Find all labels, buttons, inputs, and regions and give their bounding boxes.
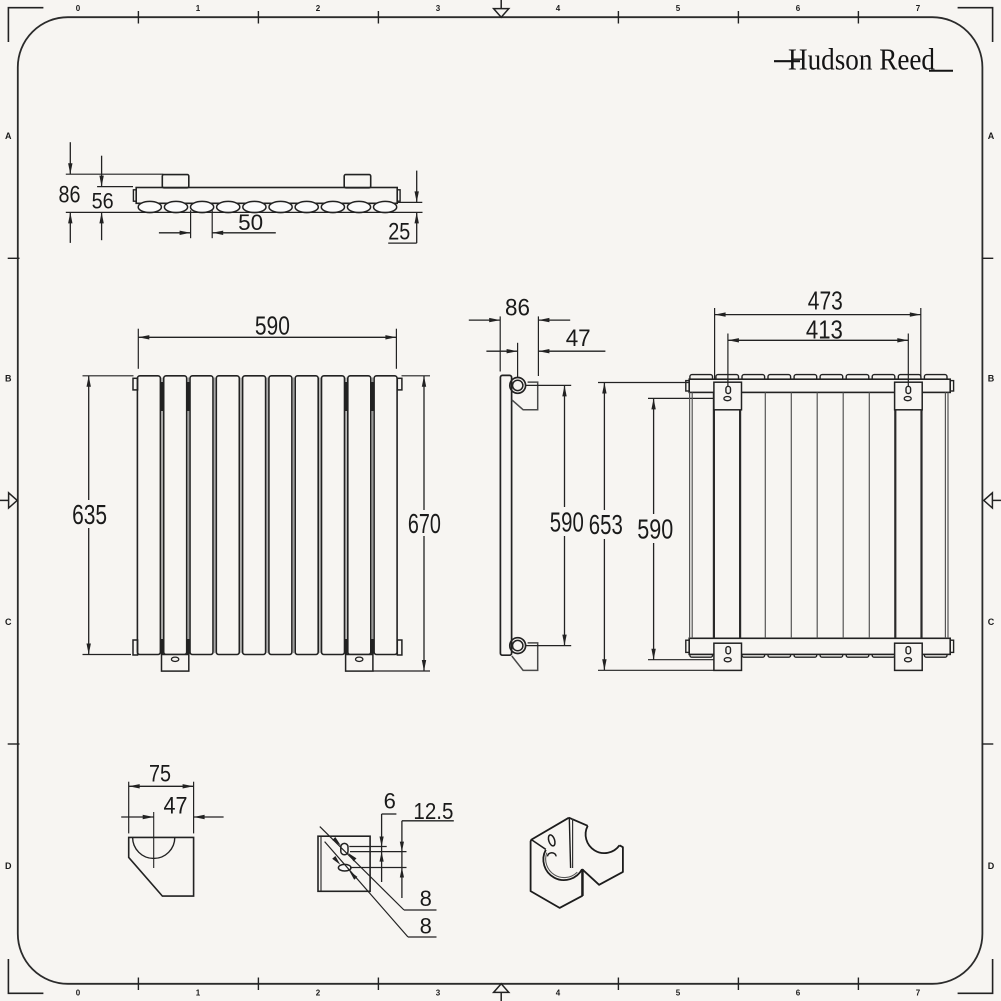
svg-text:D: D [988,861,995,871]
svg-text:86: 86 [59,181,81,208]
svg-text:6: 6 [796,989,801,998]
svg-text:A: A [988,131,995,141]
svg-text:12.5: 12.5 [413,798,453,824]
svg-text:635: 635 [72,499,107,530]
svg-text:B: B [988,374,995,384]
svg-text:56: 56 [92,189,114,214]
svg-text:1: 1 [196,4,201,13]
svg-text:2: 2 [316,989,321,998]
svg-text:413: 413 [806,315,843,345]
svg-text:5: 5 [676,989,681,998]
svg-text:A: A [5,131,12,141]
svg-text:590: 590 [637,514,673,545]
svg-text:2: 2 [316,4,321,13]
svg-text:7: 7 [916,4,921,13]
svg-text:670: 670 [408,508,441,539]
svg-text:25: 25 [388,218,410,245]
svg-text:47: 47 [566,325,591,352]
svg-text:3: 3 [436,4,441,13]
svg-text:6: 6 [384,788,396,813]
svg-text:Hudson Reed: Hudson Reed [788,41,935,76]
svg-text:473: 473 [808,285,843,315]
svg-text:C: C [988,617,995,627]
svg-text:8: 8 [420,886,432,911]
svg-text:0: 0 [76,4,81,13]
svg-text:590: 590 [550,506,584,537]
svg-text:590: 590 [255,311,290,341]
svg-text:47: 47 [164,793,188,820]
svg-text:5: 5 [676,4,681,13]
svg-text:0: 0 [76,989,81,998]
svg-text:86: 86 [505,294,530,321]
svg-text:75: 75 [149,760,171,787]
svg-text:D: D [5,861,12,871]
svg-text:7: 7 [916,989,921,998]
svg-text:1: 1 [196,989,201,998]
svg-text:3: 3 [436,989,441,998]
svg-text:B: B [5,374,12,384]
svg-text:4: 4 [556,989,561,998]
svg-text:6: 6 [796,4,801,13]
svg-text:50: 50 [238,210,263,235]
svg-text:8: 8 [420,914,432,939]
svg-text:C: C [5,617,12,627]
svg-text:653: 653 [589,509,623,540]
svg-text:4: 4 [556,4,561,13]
